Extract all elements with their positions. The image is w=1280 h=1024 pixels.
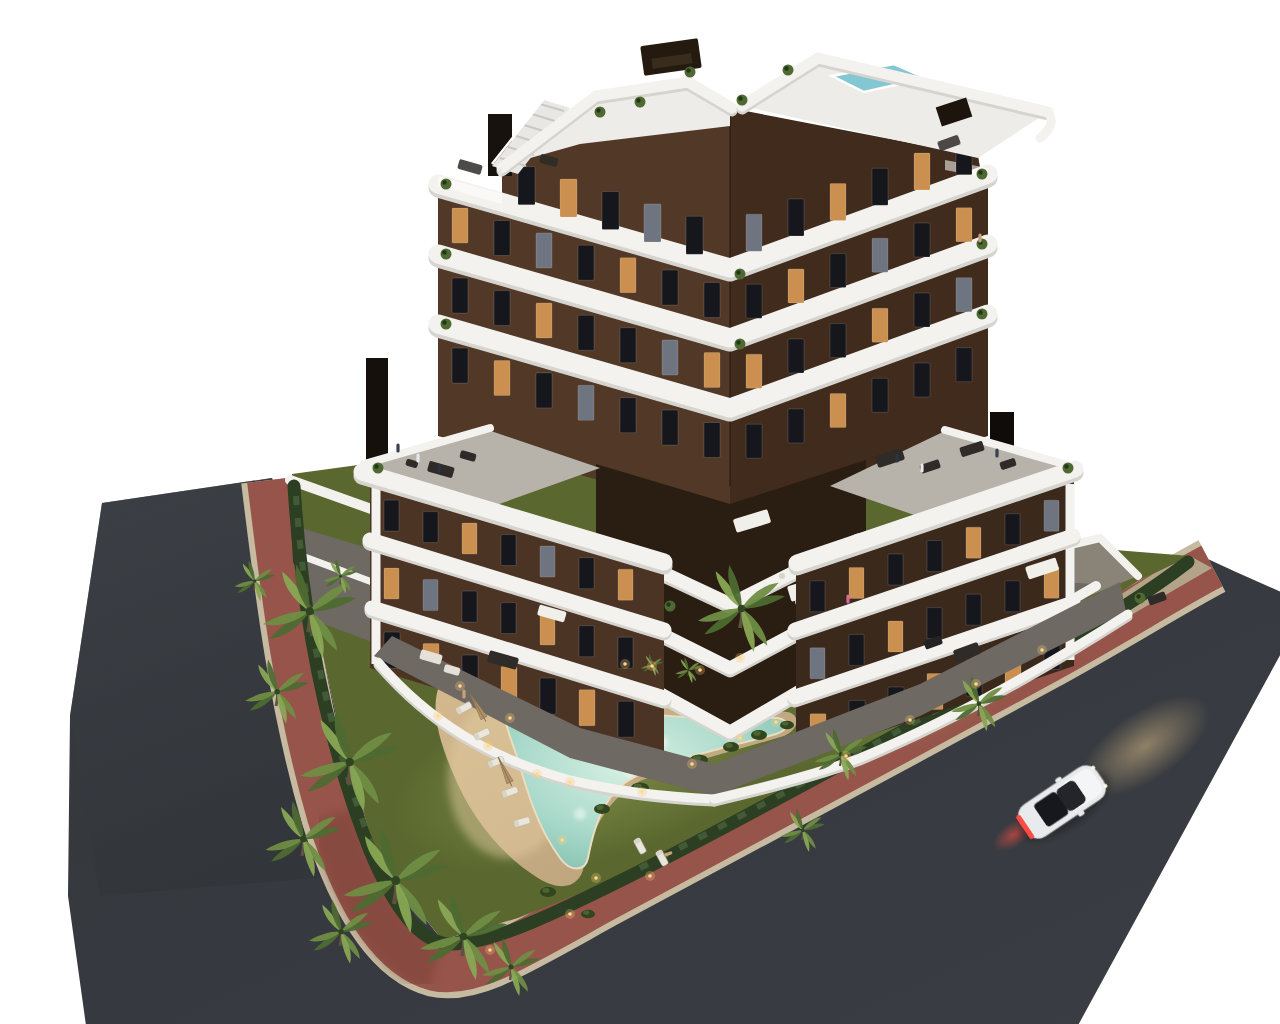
window <box>560 179 577 217</box>
window <box>1044 500 1059 531</box>
garden-light <box>844 754 848 758</box>
window <box>788 199 804 236</box>
person <box>846 595 849 604</box>
window <box>704 423 720 458</box>
bush-highlight <box>753 731 760 736</box>
window <box>494 361 510 396</box>
balcony-plant-shade <box>442 250 446 254</box>
chimney <box>366 358 388 468</box>
garden-light <box>568 780 572 784</box>
palm-crown-center <box>253 579 257 583</box>
window <box>501 603 516 634</box>
garden-light <box>436 714 440 718</box>
window <box>927 608 942 639</box>
garden-light <box>508 716 512 720</box>
window <box>494 291 510 326</box>
garden-light <box>974 682 978 686</box>
balcony-plant-shade <box>738 96 742 100</box>
window <box>686 216 703 254</box>
window <box>579 690 595 726</box>
balcony-plant-shade <box>978 170 982 174</box>
person <box>462 690 465 699</box>
bush-highlight <box>782 722 788 726</box>
garden-light <box>488 948 492 952</box>
window <box>578 245 594 280</box>
window <box>704 283 720 318</box>
window <box>956 278 972 312</box>
window <box>830 254 846 288</box>
garden-light <box>594 876 598 880</box>
window <box>662 340 678 375</box>
garden-light <box>648 874 652 878</box>
window <box>540 678 556 714</box>
person <box>978 234 981 243</box>
palm-crown-center <box>345 758 354 767</box>
palm-crown-center <box>687 669 689 671</box>
window <box>540 546 555 577</box>
window <box>872 308 888 342</box>
window <box>966 594 981 625</box>
window <box>618 701 634 737</box>
garden-light <box>738 656 742 660</box>
garden-light <box>640 790 644 794</box>
palm-crown-center <box>391 876 400 885</box>
window <box>579 626 594 657</box>
window <box>452 208 468 243</box>
garden-light <box>774 720 778 724</box>
balcony-plant-shade <box>1136 594 1140 598</box>
balcony-plant-shade <box>736 270 740 274</box>
bush-highlight <box>596 805 603 810</box>
balcony-plant-shade <box>636 98 640 102</box>
window <box>956 348 972 382</box>
window <box>788 339 804 373</box>
window <box>914 223 930 257</box>
window <box>536 233 552 268</box>
window <box>578 315 594 350</box>
balcony-plant-shade <box>596 108 600 112</box>
bush-highlight <box>725 743 732 748</box>
window <box>602 192 619 230</box>
palm-crown-center <box>338 929 344 935</box>
window <box>830 394 846 428</box>
window <box>518 167 535 205</box>
balcony-plant-shade <box>736 340 740 344</box>
window <box>872 168 888 205</box>
window <box>849 634 864 665</box>
person <box>920 464 923 473</box>
window <box>662 270 678 305</box>
garden-light <box>650 664 654 668</box>
window <box>644 204 661 242</box>
window <box>618 569 633 600</box>
garden-light <box>486 744 490 748</box>
window <box>462 523 477 554</box>
balcony-plant-shade <box>784 66 788 70</box>
bush-highlight <box>542 888 549 893</box>
window <box>888 621 903 652</box>
window <box>462 591 477 622</box>
window <box>914 293 930 327</box>
person <box>895 454 898 463</box>
window <box>423 512 438 543</box>
window <box>788 409 804 443</box>
window <box>746 424 762 458</box>
architectural-rendering <box>40 16 1280 1024</box>
window <box>423 580 438 611</box>
palm-crown-center <box>801 828 805 832</box>
palm-crown-center <box>977 701 982 706</box>
window <box>620 258 636 293</box>
palm-crown-center <box>509 965 514 970</box>
window <box>662 410 678 445</box>
palm-crown-center <box>306 607 314 615</box>
window <box>956 208 972 242</box>
garden-light <box>568 912 572 916</box>
garden-light <box>560 838 564 842</box>
window <box>872 238 888 272</box>
palm-crown-center <box>460 933 468 941</box>
window <box>810 648 825 679</box>
window <box>704 353 720 388</box>
window <box>536 373 552 408</box>
window <box>810 581 825 612</box>
window <box>914 153 930 190</box>
window <box>830 184 846 221</box>
window <box>788 269 804 303</box>
window <box>494 221 510 256</box>
window <box>452 278 468 313</box>
garden-light <box>1040 648 1044 652</box>
person <box>995 449 998 458</box>
palm-crown-center <box>274 689 280 695</box>
window <box>746 214 762 251</box>
window <box>1005 514 1020 545</box>
balcony-plant-shade <box>374 464 378 468</box>
garden-light <box>458 684 462 688</box>
balcony-plant-shade <box>442 320 446 324</box>
window <box>927 541 942 572</box>
window <box>578 385 594 420</box>
garden-light <box>908 718 912 722</box>
balcony-plant-shade <box>978 310 982 314</box>
window <box>384 500 399 531</box>
person <box>416 454 419 463</box>
window <box>966 527 981 558</box>
window <box>384 568 399 599</box>
window <box>830 324 846 358</box>
window <box>620 398 636 433</box>
bush-highlight <box>583 911 589 915</box>
garden-light <box>698 668 702 672</box>
window <box>746 284 762 318</box>
window <box>579 558 594 589</box>
window <box>746 354 762 388</box>
garden-light <box>623 662 627 666</box>
window <box>872 378 888 412</box>
balcony-plant-shade <box>1064 464 1068 468</box>
garden-light <box>690 762 694 766</box>
person <box>437 464 440 473</box>
garden-light <box>535 772 539 776</box>
window <box>1005 581 1020 612</box>
scene-canvas <box>40 16 1280 1024</box>
window <box>536 303 552 338</box>
window <box>620 328 636 363</box>
window <box>888 554 903 585</box>
person <box>498 168 501 177</box>
palm-crown-center <box>300 836 307 843</box>
balcony-plant-shade <box>686 68 690 72</box>
garden-light <box>738 736 742 740</box>
palm-crown-center <box>339 575 342 578</box>
balcony-plant-shade <box>442 180 446 184</box>
window <box>849 567 864 598</box>
person <box>396 444 399 453</box>
balcony-plant-shade <box>666 602 670 606</box>
window <box>914 363 930 397</box>
palm-crown-center <box>738 605 746 613</box>
window <box>452 348 468 383</box>
window <box>501 535 516 566</box>
